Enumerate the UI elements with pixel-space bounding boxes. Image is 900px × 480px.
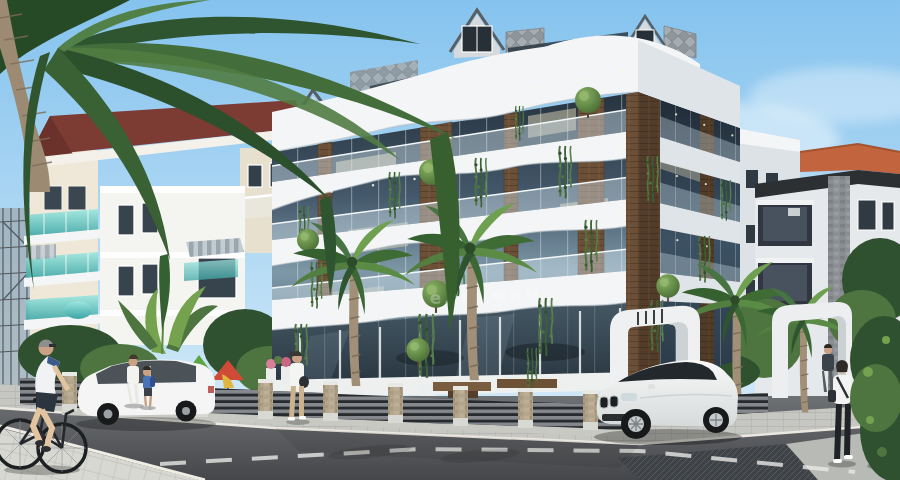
render-viewport: едвижим bbox=[0, 0, 900, 480]
ac-unit bbox=[788, 208, 800, 216]
shoulder-bag bbox=[828, 390, 836, 402]
side-mirror bbox=[648, 384, 655, 389]
rolled-awning bbox=[28, 244, 56, 260]
taillight bbox=[208, 386, 214, 393]
kidney-grille bbox=[600, 397, 608, 408]
teal-dome bbox=[64, 301, 92, 319]
headlight bbox=[621, 393, 637, 401]
teal-balconies bbox=[24, 209, 104, 330]
scene-render: едвижим bbox=[0, 0, 900, 480]
